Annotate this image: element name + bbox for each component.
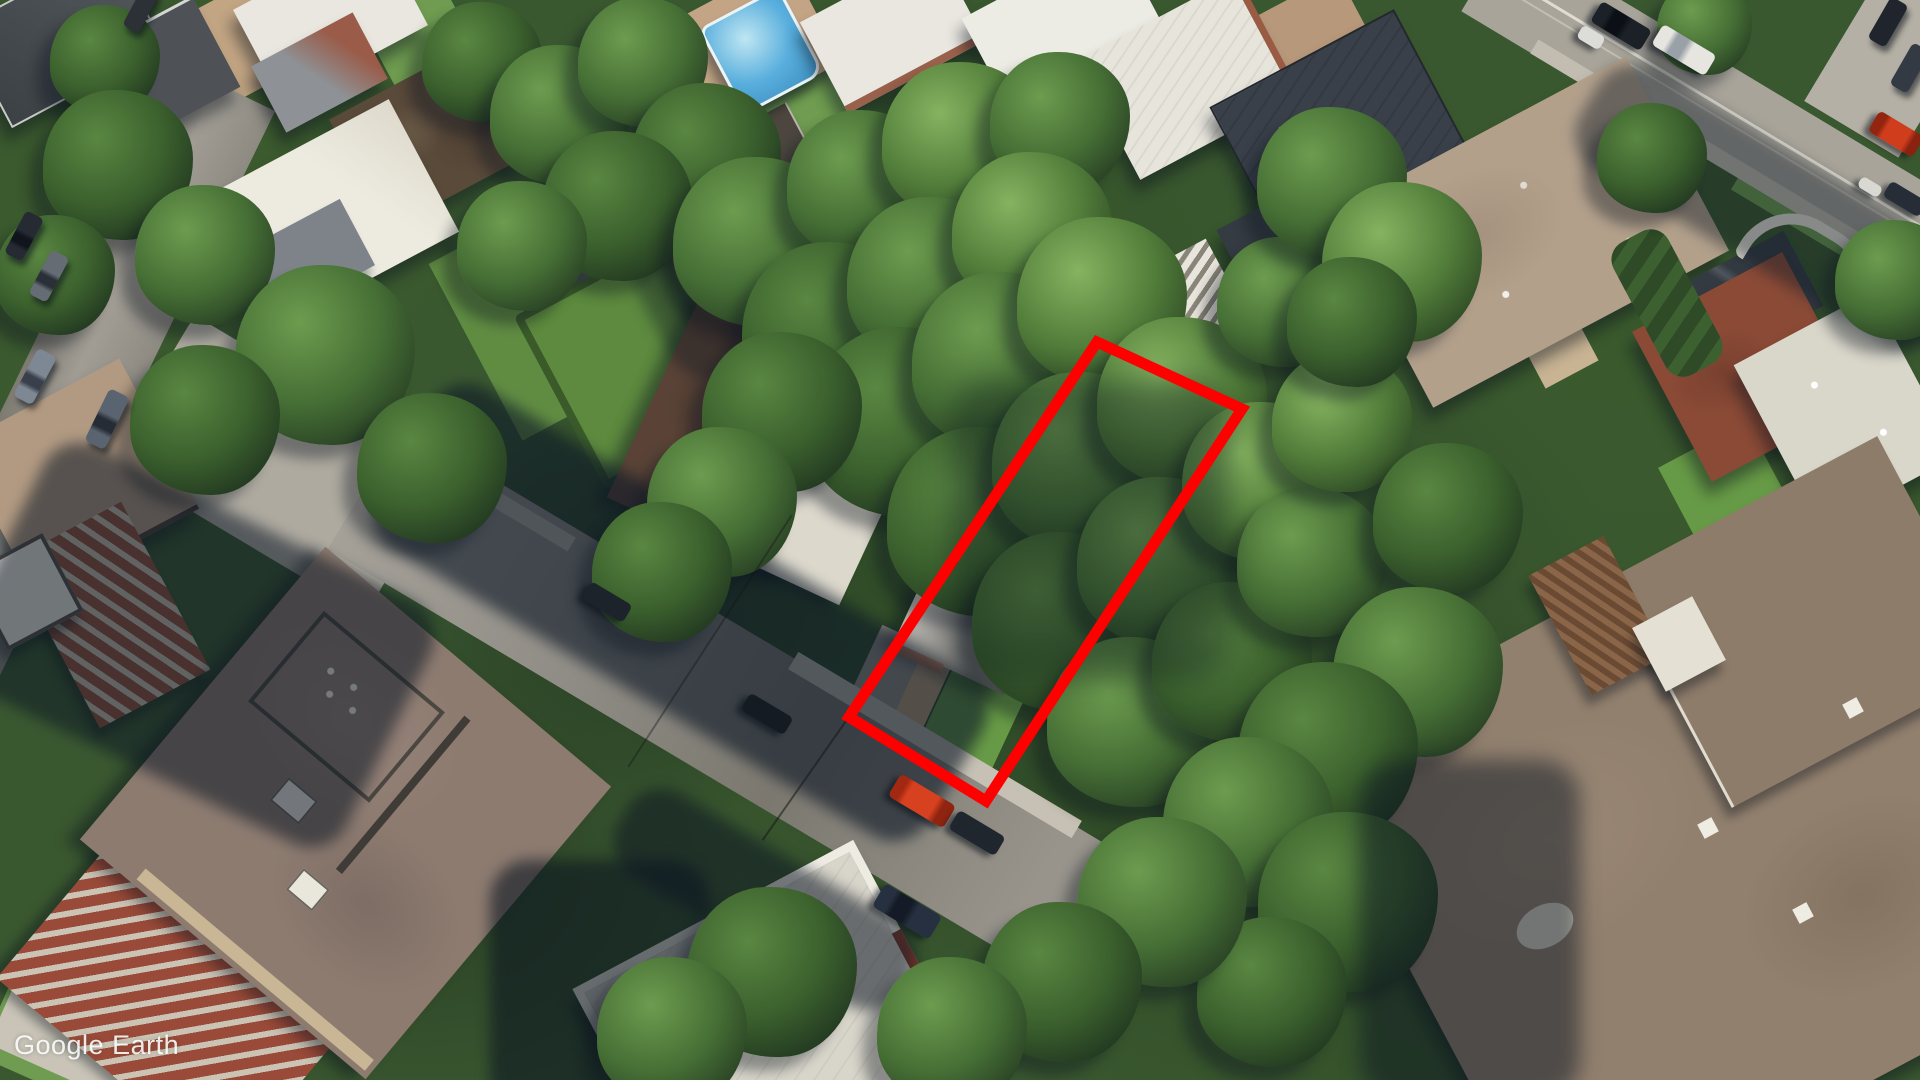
- google-earth-satellite-view[interactable]: Google Earth: [0, 0, 1920, 1080]
- tree: [457, 181, 587, 311]
- google-earth-watermark: Google Earth: [14, 1030, 179, 1061]
- tree: [130, 345, 280, 495]
- tree: [357, 393, 507, 543]
- tree: [592, 502, 732, 642]
- tree: [1287, 257, 1417, 387]
- tree: [1373, 443, 1523, 593]
- tree: [1597, 103, 1707, 213]
- roof-skylight: [286, 868, 330, 911]
- canopy-shadow: [1360, 760, 1580, 1080]
- canopy-shadow: [950, 380, 1230, 680]
